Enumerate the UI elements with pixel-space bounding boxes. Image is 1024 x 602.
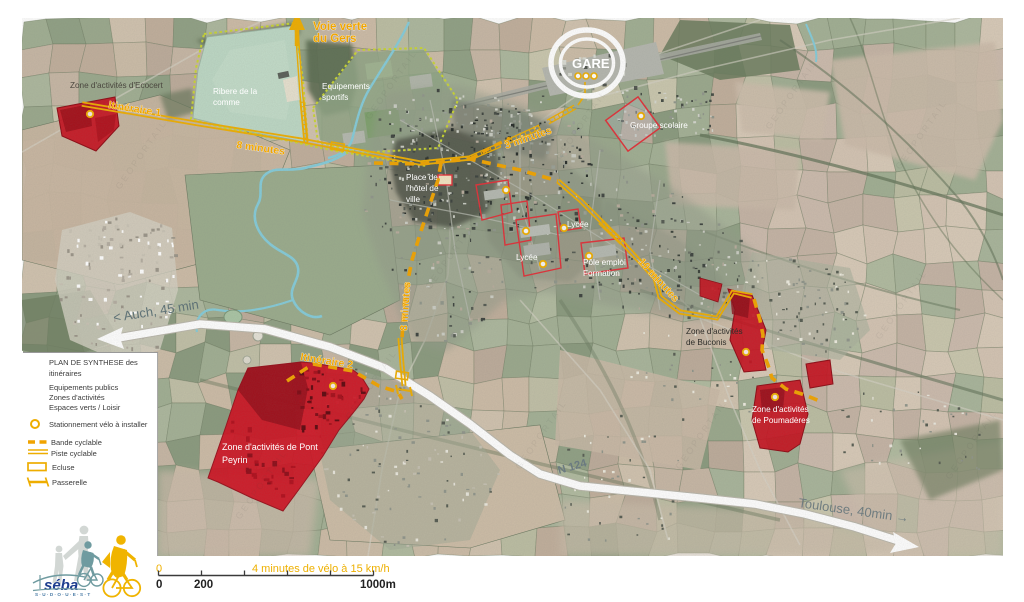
svg-text:Peyrin: Peyrin [222, 455, 248, 465]
svg-text:Zone d'activités d'Ecocert: Zone d'activités d'Ecocert [70, 81, 164, 90]
svg-text:de Buconis: de Buconis [686, 338, 727, 347]
svg-text:Zone d'activités de Pont: Zone d'activités de Pont [222, 442, 318, 452]
svg-text:Passerelle: Passerelle [52, 478, 87, 487]
svg-text:4 minutes de vélo à 15 km/h: 4 minutes de vélo à 15 km/h [252, 563, 390, 575]
svg-text:Pôle emploi: Pôle emploi [583, 258, 626, 267]
svg-text:Equipements: Equipements [322, 82, 370, 91]
svg-text:sportifs: sportifs [322, 93, 348, 102]
svg-text:Ecluse: Ecluse [52, 463, 75, 472]
svg-text:Lycée: Lycée [567, 220, 589, 229]
svg-text:Zone d'activités: Zone d'activités [686, 327, 743, 336]
svg-text:Zones d'activités: Zones d'activités [49, 393, 105, 402]
svg-text:Bande cyclable: Bande cyclable [51, 438, 102, 447]
svg-text:Lycée: Lycée [516, 253, 538, 262]
svg-text:Ribere de la: Ribere de la [213, 87, 258, 96]
svg-text:Stationnement vélo à installer: Stationnement vélo à installer [49, 420, 148, 429]
svg-text:l'hôtel de: l'hôtel de [406, 184, 439, 193]
svg-text:Piste cyclable: Piste cyclable [51, 449, 97, 458]
svg-text:de Poumadères: de Poumadères [752, 416, 810, 425]
svg-text:ville: ville [406, 195, 421, 204]
svg-text:Espaces verts / Loisir: Espaces verts / Loisir [49, 403, 121, 412]
svg-text:Voie verte: Voie verte [313, 21, 367, 33]
svg-text:du Gers: du Gers [313, 33, 356, 45]
svg-text:Zone d'activités: Zone d'activités [752, 405, 809, 414]
svg-text:0: 0 [156, 579, 162, 591]
svg-text:Place de: Place de [406, 173, 438, 182]
svg-text:Formation: Formation [583, 269, 620, 278]
svg-text:200: 200 [194, 579, 213, 591]
svg-text:Groupe scolaire: Groupe scolaire [630, 121, 688, 130]
svg-text:GARE: GARE [572, 56, 610, 71]
svg-text:comme: comme [213, 98, 240, 107]
svg-text:itinéraires: itinéraires [49, 369, 82, 378]
svg-text:Equipements publics: Equipements publics [49, 383, 118, 392]
svg-text:PLAN DE SYNTHESE des: PLAN DE SYNTHESE des [49, 358, 138, 367]
svg-text:S·U·D·O·U·E·S·T: S·U·D·O·U·E·S·T [35, 592, 91, 597]
svg-text:1000m: 1000m [360, 579, 396, 591]
